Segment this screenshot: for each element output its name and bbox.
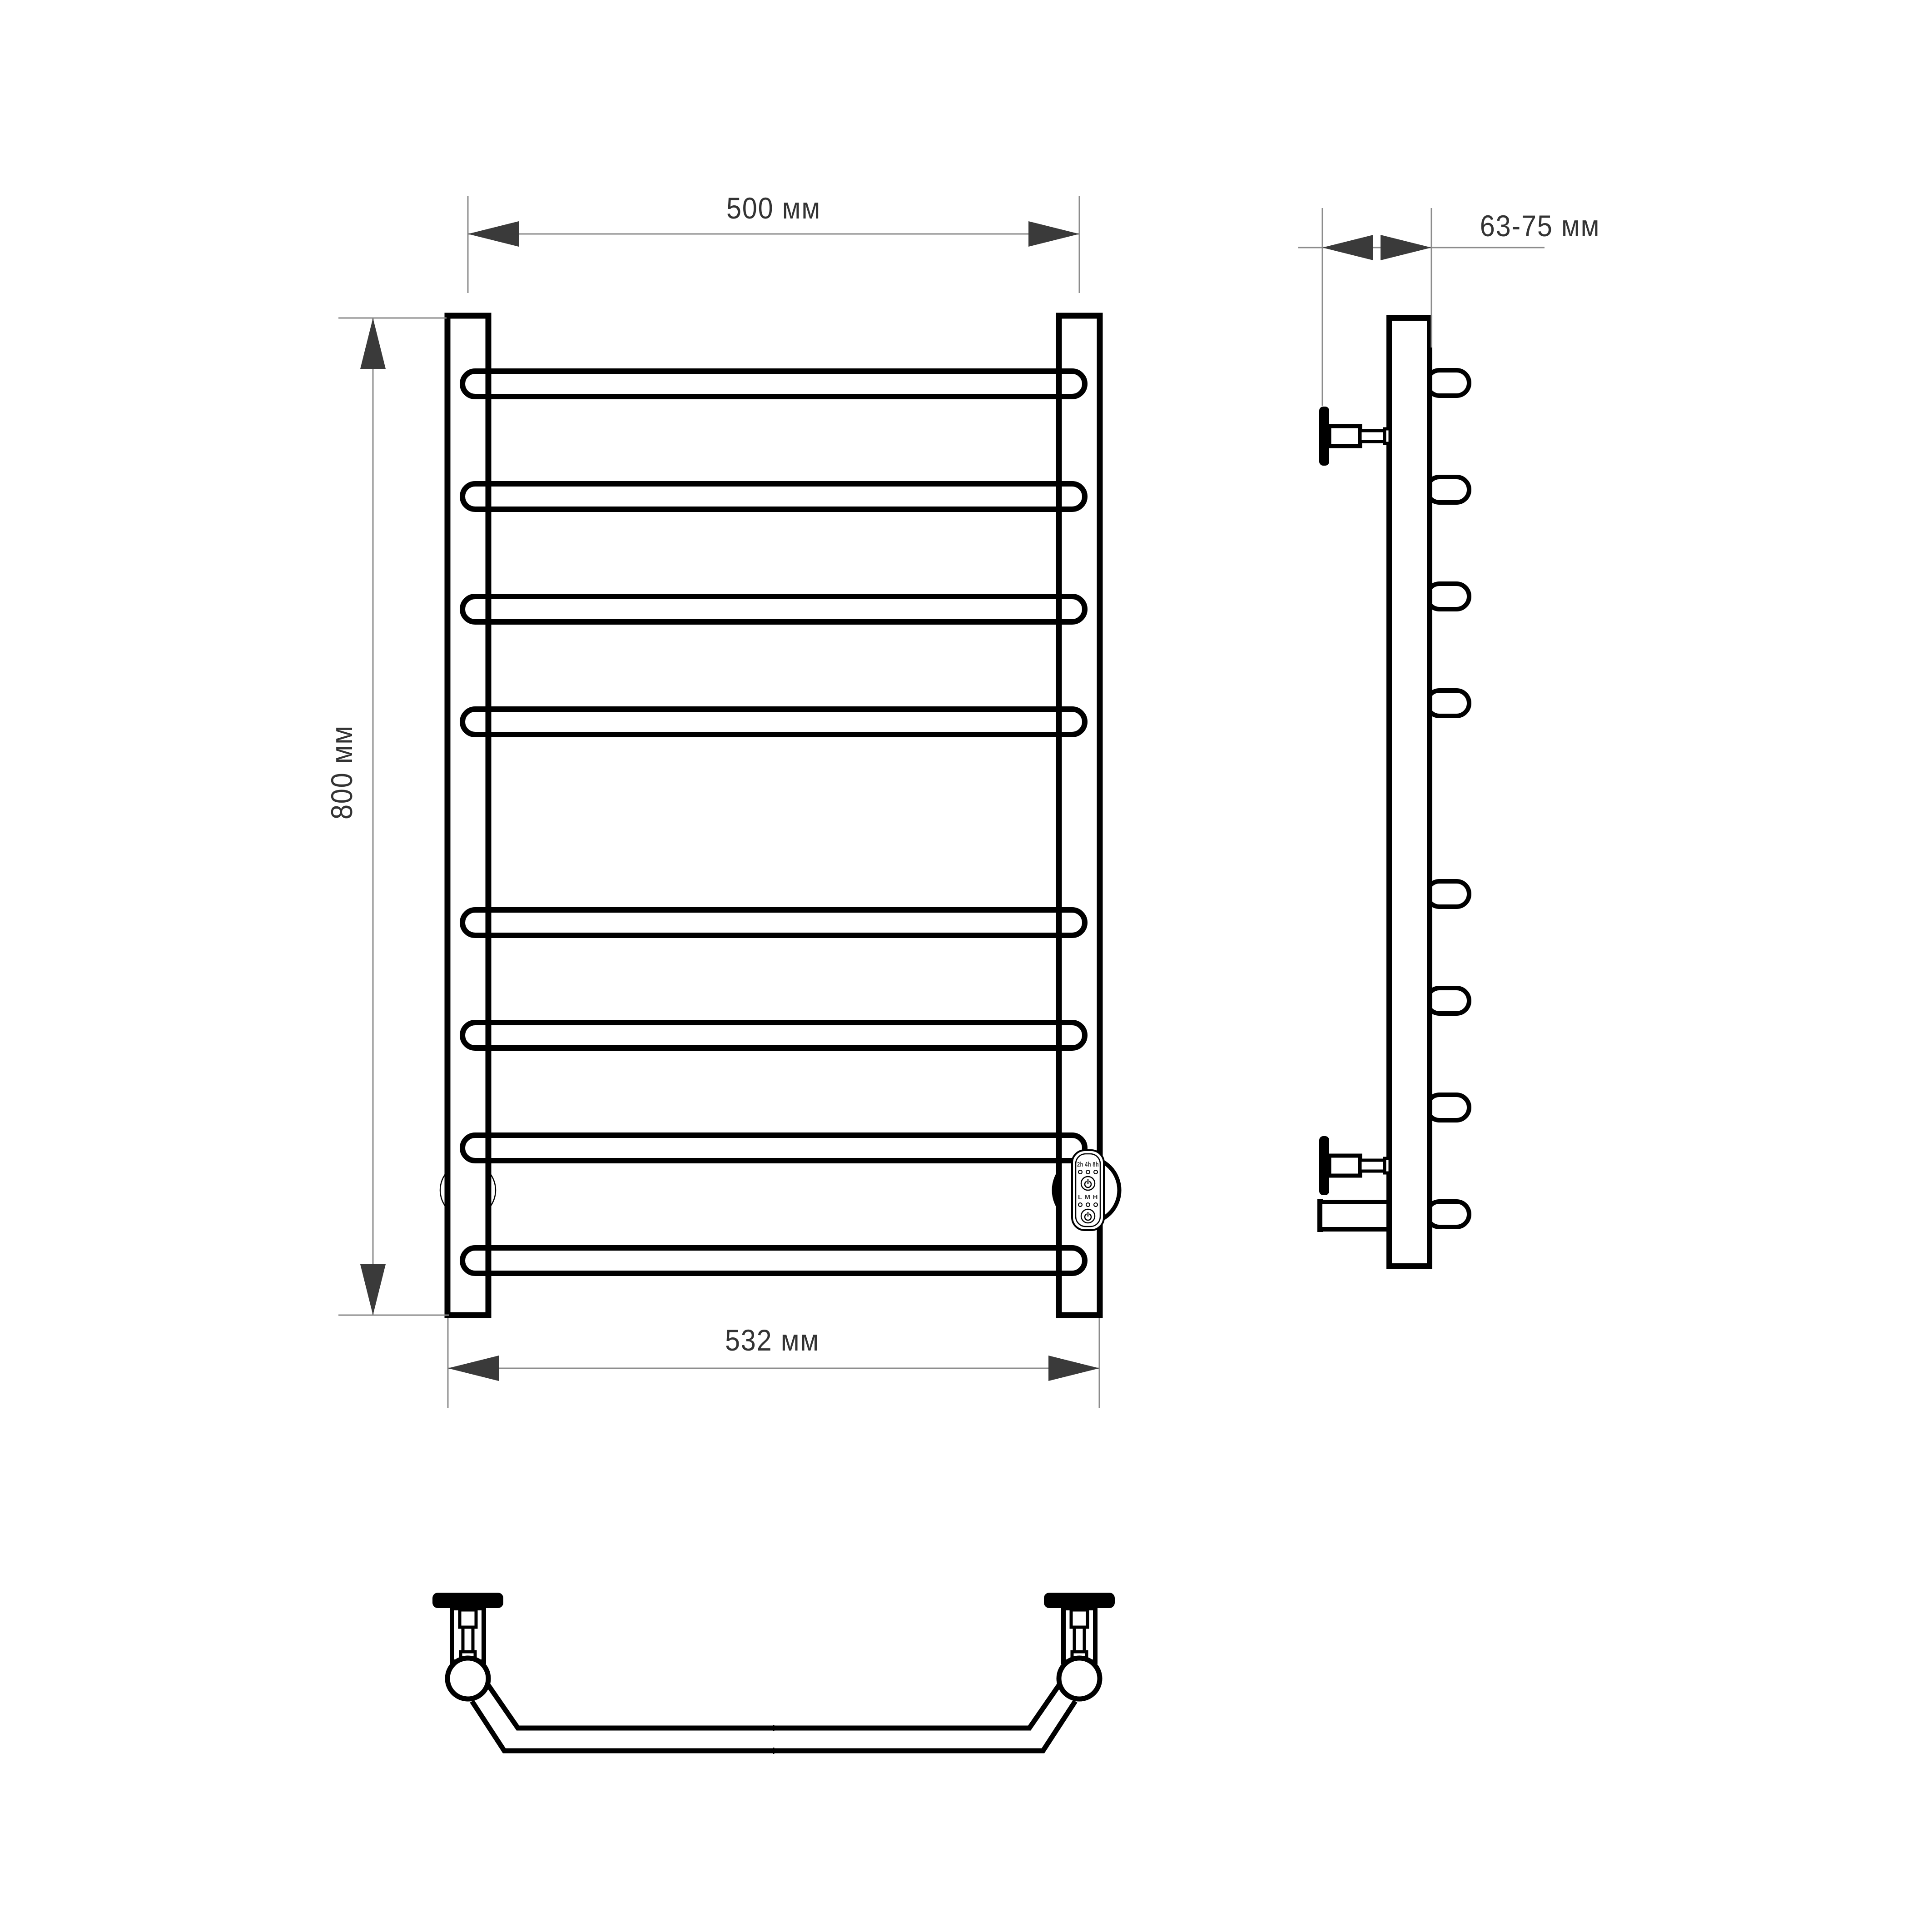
dimension-arrowhead-icon bbox=[468, 221, 519, 247]
wall-bracket-top-view bbox=[432, 1593, 503, 1662]
side-post bbox=[1389, 318, 1430, 1266]
dimension-arrowhead-icon bbox=[360, 1264, 386, 1315]
rungs bbox=[462, 371, 1085, 1273]
timer-labels: 2h 4h 8h bbox=[1077, 1161, 1099, 1168]
rung-stub bbox=[1427, 881, 1469, 907]
rung-stub bbox=[1427, 988, 1469, 1013]
bracket-rod bbox=[460, 1610, 476, 1627]
height-label: 800 мм bbox=[324, 725, 359, 819]
side-view bbox=[1317, 318, 1469, 1266]
top-view bbox=[432, 1593, 1115, 1754]
rung bbox=[462, 709, 1085, 735]
dimension-arrowhead-icon bbox=[360, 318, 386, 369]
wall-bracket-top-view bbox=[1044, 1593, 1115, 1662]
drawing-linework: 2h 4h 8h L M H bbox=[0, 0, 1932, 1932]
bracket-cylinder bbox=[1329, 426, 1360, 446]
rung bbox=[462, 1248, 1085, 1273]
rung-stub bbox=[1427, 477, 1469, 502]
bracket-rod bbox=[1074, 1627, 1084, 1652]
bracket-collar bbox=[1385, 1158, 1390, 1173]
dimension-arrowhead-icon bbox=[1028, 221, 1079, 247]
towel-rail-technical-drawing: 2h 4h 8h L M H bbox=[0, 0, 1932, 1932]
dimension-arrowhead-icon bbox=[1048, 1356, 1099, 1381]
wall-bracket bbox=[1319, 407, 1390, 466]
rung bbox=[462, 484, 1085, 509]
bracket-flange bbox=[1044, 1593, 1115, 1608]
bottom-width-label: 532 мм bbox=[725, 1323, 819, 1357]
dimension-arrowhead-icon bbox=[448, 1356, 499, 1381]
dimension-arrowhead-icon bbox=[1322, 235, 1373, 260]
rung-stub bbox=[1427, 1095, 1469, 1120]
control-panel: 2h 4h 8h L M H bbox=[1072, 1150, 1104, 1230]
rung bbox=[462, 910, 1085, 935]
post-cap bbox=[447, 1658, 488, 1699]
mode-labels: L M H bbox=[1078, 1193, 1098, 1201]
front-view: 2h 4h 8h L M H bbox=[440, 316, 1119, 1315]
rung-stub bbox=[1427, 690, 1469, 716]
dimension-arrowhead-icon bbox=[1381, 235, 1431, 260]
top-width-label: 500 мм bbox=[726, 191, 821, 225]
rung-stub bbox=[1427, 1202, 1469, 1227]
rung bbox=[462, 1135, 1085, 1161]
bracket-collar bbox=[1385, 429, 1390, 443]
bracket-flange bbox=[432, 1593, 503, 1608]
bracket-rod bbox=[1071, 1610, 1088, 1627]
rung bbox=[462, 596, 1085, 622]
bracket-rod bbox=[463, 1627, 473, 1652]
left-post bbox=[447, 316, 488, 1315]
bracket-cylinder bbox=[1329, 1156, 1360, 1176]
bracket-rod bbox=[1360, 1160, 1385, 1171]
bracket-rod bbox=[1360, 431, 1385, 442]
post-cap bbox=[1059, 1658, 1100, 1699]
rung-stub bbox=[1427, 370, 1469, 396]
rung-stubs bbox=[1427, 370, 1469, 1227]
rung bbox=[462, 1023, 1085, 1048]
wall-bracket bbox=[1319, 1136, 1390, 1195]
wall-distance-label: 63-75 мм bbox=[1480, 209, 1600, 243]
rung-stub bbox=[1427, 584, 1469, 609]
rung-pipe-outline bbox=[472, 1683, 1075, 1754]
rung bbox=[462, 371, 1085, 397]
